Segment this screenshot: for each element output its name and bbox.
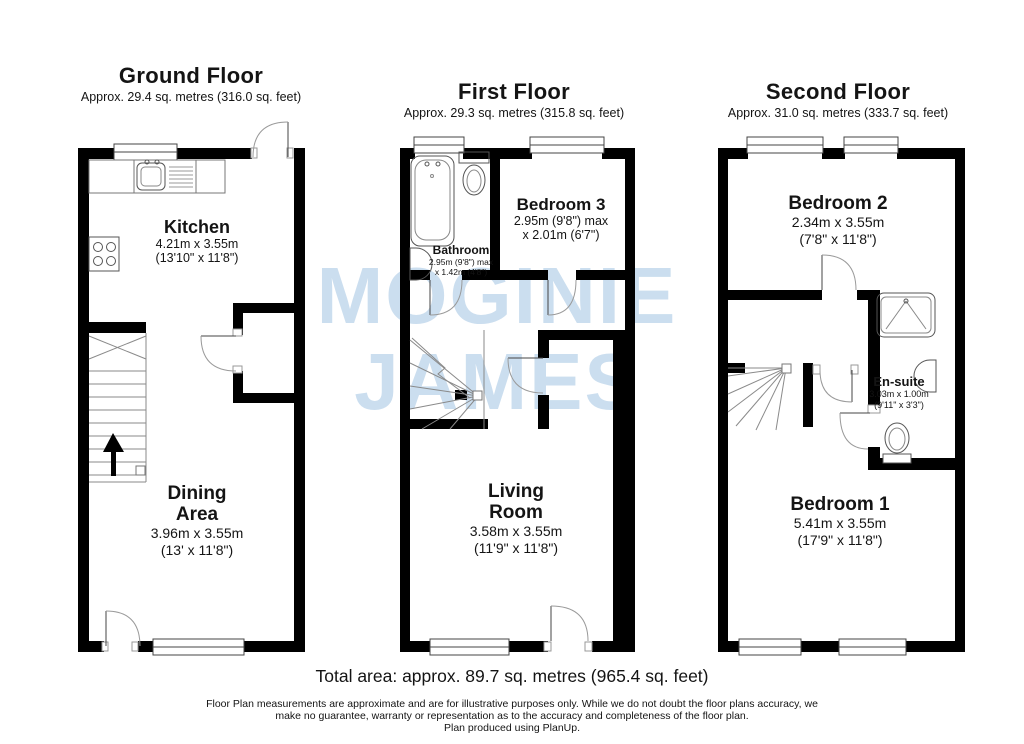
disclaimer-line-1: Floor Plan measurements are approximate … xyxy=(206,698,818,711)
room-name: Bedroom 1 xyxy=(790,494,889,515)
room-dims: (9'11" x 3'3") xyxy=(869,400,929,411)
drainer-icon xyxy=(169,167,193,187)
room-dims: (7'8" x 11'8") xyxy=(788,231,887,248)
back-door-icon xyxy=(102,611,140,651)
bedroom1-door-icon xyxy=(813,365,858,402)
window-icon xyxy=(839,639,906,655)
room-dims: (11'9" x 11'8") xyxy=(470,540,563,557)
hob-icon xyxy=(89,237,119,271)
room-dims: x 1.42m (4'8") xyxy=(429,267,493,277)
room-dims: x 2.01m (6'7") xyxy=(514,228,608,242)
entry-door-icon xyxy=(251,122,293,158)
landing-door-icon xyxy=(508,358,543,393)
bath-icon xyxy=(411,156,454,246)
room-label-bathroom: Bathroom 2.95m (9'8") max x 1.42m (4'8") xyxy=(429,244,493,277)
window-icon xyxy=(747,137,823,153)
room-dims: 5.41m x 3.55m xyxy=(790,515,889,532)
room-name: Living xyxy=(470,481,563,502)
shower-icon xyxy=(877,293,935,337)
room-label-bedroom-3: Bedroom 3 2.95m (9'8") max x 2.01m (6'7"… xyxy=(514,195,608,242)
window-icon xyxy=(844,137,898,153)
living-room-door-icon xyxy=(544,606,592,651)
ensuite-door-icon xyxy=(840,405,880,449)
second-floor-area: Approx. 31.0 sq. metres (333.7 sq. feet) xyxy=(728,106,948,120)
cupboard-door-icon xyxy=(201,329,242,373)
staircase-icon xyxy=(728,364,791,430)
bedroom3-door-icon xyxy=(548,280,576,315)
first-floor-title: First Floor xyxy=(458,79,570,105)
room-name: Kitchen xyxy=(156,217,239,237)
room-label-dining-area: Dining Area 3.96m x 3.55m (13' x 11'8") xyxy=(151,483,244,558)
room-dims: 3.58m x 3.55m xyxy=(470,523,563,540)
room-dims: (13'10" x 11'8") xyxy=(156,251,239,265)
first-floor-area: Approx. 29.3 sq. metres (315.8 sq. feet) xyxy=(404,106,624,120)
window-icon xyxy=(739,639,801,655)
room-dims: 3.03m x 1.00m xyxy=(869,389,929,400)
disclaimer-line-2: make no guarantee, warranty or represent… xyxy=(275,710,748,723)
kitchen-counter-icon xyxy=(89,160,225,193)
room-name: Area xyxy=(151,504,244,525)
stairs-up-arrow-icon xyxy=(103,433,124,476)
room-label-living-room: Living Room 3.58m x 3.55m (11'9" x 11'8"… xyxy=(470,481,563,556)
ground-floor-title: Ground Floor xyxy=(119,63,263,89)
room-dims: 4.21m x 3.55m xyxy=(156,237,239,251)
room-name: Room xyxy=(470,502,563,523)
room-label-en-suite: En-suite 3.03m x 1.00m (9'11" x 3'3") xyxy=(869,375,929,410)
toilet-icon xyxy=(883,423,911,463)
room-name: En-suite xyxy=(869,375,929,389)
room-dims: 2.95m (9'8") max xyxy=(429,257,493,267)
room-label-bedroom-1: Bedroom 1 5.41m x 3.55m (17'9" x 11'8") xyxy=(790,494,889,548)
room-name: Bedroom 2 xyxy=(788,193,887,214)
window-icon xyxy=(114,144,177,160)
window-icon xyxy=(430,639,509,655)
ground-floor-plan xyxy=(78,122,305,655)
room-name: Bedroom 3 xyxy=(514,195,608,214)
total-area-text: Total area: approx. 89.7 sq. metres (965… xyxy=(316,666,709,687)
sink-icon xyxy=(137,160,165,190)
room-name: Dining xyxy=(151,483,244,504)
bedroom2-door-icon xyxy=(822,255,856,290)
room-dims: (13' x 11'8") xyxy=(151,542,244,559)
room-dims: (17'9" x 11'8") xyxy=(790,532,889,549)
disclaimer-line-3: Plan produced using PlanUp. xyxy=(444,722,580,735)
staircase-icon xyxy=(410,330,484,429)
room-dims: 2.34m x 3.55m xyxy=(788,214,887,231)
room-dims: 2.95m (9'8") max xyxy=(514,214,608,228)
second-floor-title: Second Floor xyxy=(766,79,910,105)
ground-floor-area: Approx. 29.4 sq. metres (316.0 sq. feet) xyxy=(81,90,301,104)
window-icon xyxy=(153,639,244,655)
window-icon xyxy=(530,137,604,153)
staircase-icon xyxy=(89,333,146,482)
window-icon xyxy=(414,137,464,153)
room-label-kitchen: Kitchen 4.21m x 3.55m (13'10" x 11'8") xyxy=(156,217,239,265)
room-label-bedroom-2: Bedroom 2 2.34m x 3.55m (7'8" x 11'8") xyxy=(788,193,887,247)
room-dims: 3.96m x 3.55m xyxy=(151,525,244,542)
bathroom-door-icon xyxy=(430,280,462,315)
room-name: Bathroom xyxy=(429,244,493,257)
